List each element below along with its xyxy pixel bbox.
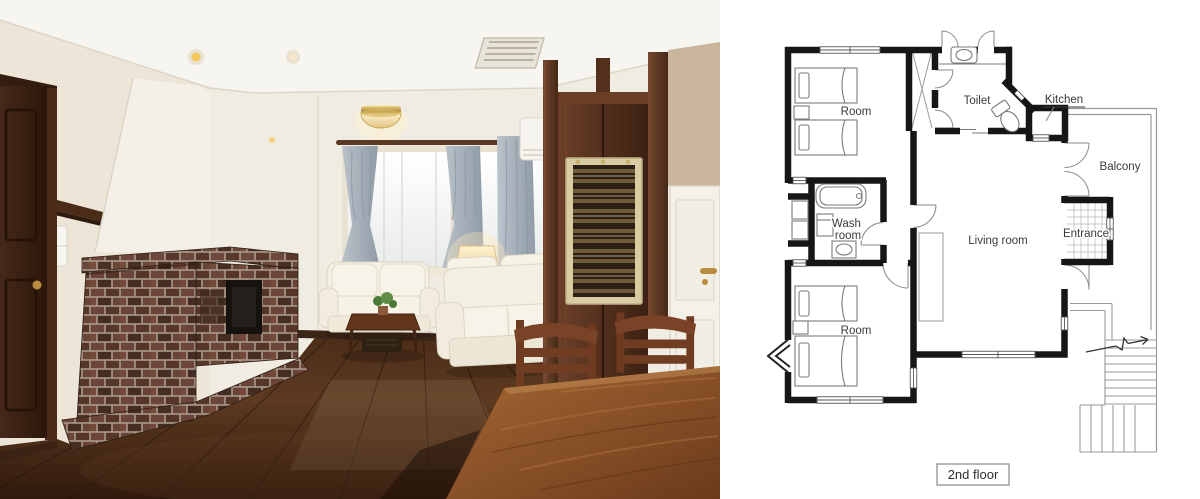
closet-shelf — [792, 221, 808, 239]
dining-chair — [615, 312, 696, 372]
door-knob — [33, 281, 42, 290]
bed — [795, 68, 857, 103]
label-balcony: Balcony — [1100, 161, 1141, 173]
label-toilet: Toilet — [964, 95, 992, 107]
washing-machine — [817, 214, 833, 236]
bed — [795, 120, 857, 155]
door-handle — [700, 268, 717, 274]
left-door — [0, 74, 57, 440]
living-room-photo — [0, 0, 720, 499]
louver-panel — [566, 158, 642, 304]
nightstand — [793, 321, 808, 334]
floor-caption-text: 2nd floor — [948, 467, 999, 482]
svg-text:Kitchen: Kitchen — [1045, 94, 1083, 106]
recessed-light — [188, 49, 204, 65]
label-entrance: Entrance — [1063, 228, 1109, 240]
storage-basket — [362, 336, 402, 352]
floor-plan: Room Toilet Kitchen Balcony Wash room Li… — [720, 0, 1200, 499]
label-living-room: Living room — [968, 235, 1027, 247]
bathtub — [816, 184, 866, 208]
bed — [795, 336, 857, 386]
label-room-bottom: Room — [841, 325, 872, 337]
bed — [795, 286, 857, 321]
living-room-photo-svg — [0, 0, 720, 499]
floor-caption: 2nd floor — [937, 464, 1009, 485]
recessed-light — [267, 135, 277, 145]
beige-wall — [668, 42, 720, 190]
wash-basin — [832, 241, 856, 258]
label-room-top: Room — [841, 106, 872, 118]
ceiling-lamp — [355, 104, 407, 140]
label-wash-room: Wash room — [832, 218, 864, 242]
nightstand — [794, 106, 809, 119]
floor-plan-svg: Room Toilet Kitchen Balcony Wash room Li… — [720, 0, 1200, 499]
closet-shelf — [792, 201, 808, 219]
wood-post — [648, 52, 668, 320]
recessed-light — [286, 50, 300, 64]
property-listing-image: Room Toilet Kitchen Balcony Wash room Li… — [0, 0, 1200, 499]
air-vent-icon — [475, 38, 544, 68]
plan-background — [720, 0, 1200, 499]
light-switch — [56, 226, 67, 266]
